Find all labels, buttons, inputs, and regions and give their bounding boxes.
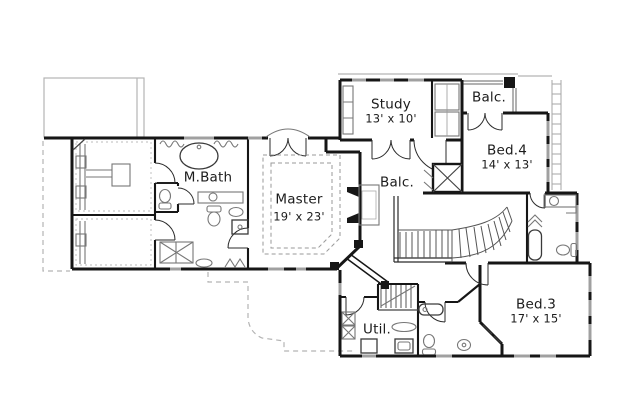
main-staircase <box>394 196 512 262</box>
bed4-balcony-doors <box>468 113 485 130</box>
room-dims-master: 19' x 23' <box>273 210 325 224</box>
study-doors <box>372 140 391 159</box>
laundry-sink <box>392 323 416 332</box>
master-bay-arch <box>266 129 310 137</box>
exterior-ladder <box>552 80 561 190</box>
toilet <box>557 245 570 255</box>
toilet-2 <box>208 212 220 226</box>
room-label-balcony-overlook: Balc. <box>380 175 414 191</box>
master-bath-door <box>228 228 248 248</box>
bed3-door <box>466 263 488 285</box>
toilet <box>424 335 435 348</box>
bath-counter <box>544 195 576 207</box>
floor-plan: Study 13' x 10' Balc. Bed.4 14' x 13' M.… <box>0 0 620 415</box>
room-label-study: Study <box>371 97 411 113</box>
garden-tub <box>180 143 218 169</box>
closet2-door <box>155 220 175 240</box>
bath-sink <box>550 197 559 206</box>
bathtub <box>529 230 542 260</box>
balcony-column <box>504 77 515 88</box>
wall-post <box>381 281 389 289</box>
tub-tile-edge <box>160 141 238 147</box>
wall-post <box>330 262 339 270</box>
closet-fittings <box>73 139 151 265</box>
room-label-master: Master <box>275 192 322 208</box>
room-dims-bed3: 17' x 15' <box>510 312 562 326</box>
vanity-counter <box>198 192 243 203</box>
hall-bath-door <box>530 193 545 208</box>
roof-rect <box>44 78 144 137</box>
corner-brace <box>73 139 85 150</box>
bookshelf <box>343 86 353 134</box>
linen-marks <box>225 259 245 267</box>
sink-oval <box>229 208 243 217</box>
wall-post <box>354 240 363 248</box>
room-label-mbath: M.Bath <box>184 170 233 186</box>
room-label-bed4: Bed.4 <box>487 143 527 159</box>
toilet-room-door <box>178 188 194 204</box>
toilet <box>160 190 171 203</box>
sink <box>458 340 471 351</box>
bed3-closet-doors <box>483 325 501 343</box>
closet1-door <box>155 163 175 183</box>
hall-sink <box>196 259 212 267</box>
room-dims-study: 13' x 10' <box>365 112 417 126</box>
master-window-doors <box>270 138 288 156</box>
closet-rod-bracket <box>112 164 130 186</box>
room-label-balcony-upper: Balc. <box>472 90 506 106</box>
vanity-sink <box>209 193 217 201</box>
washer <box>361 339 377 353</box>
fireplace <box>347 185 379 225</box>
room-label-util: Util. <box>363 322 391 338</box>
room-label-bed3: Bed.3 <box>516 297 556 313</box>
room-dims-bed4: 14' x 13' <box>481 158 533 172</box>
stair-outer-curve <box>452 207 507 230</box>
shower <box>232 220 248 234</box>
stair-railing <box>394 196 398 262</box>
lower-roof-dash <box>208 272 356 351</box>
